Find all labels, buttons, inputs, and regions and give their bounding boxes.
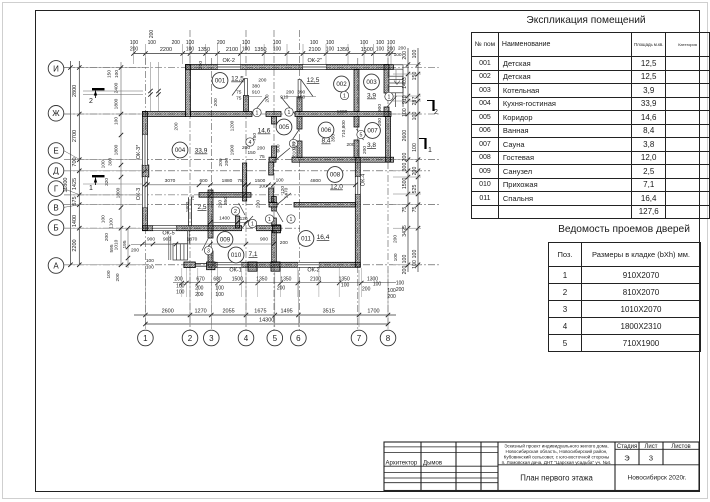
svg-text:ОК-2": ОК-2" [308,58,322,64]
svg-text:1270: 1270 [194,309,206,315]
svg-text:1: 1 [290,217,293,223]
svg-text:И: И [53,64,59,73]
svg-text:75: 75 [236,96,242,102]
svg-text:1350: 1350 [280,277,291,283]
svg-text:1800: 1800 [114,98,120,109]
svg-text:1495: 1495 [280,309,292,315]
svg-text:1: 1 [388,94,391,100]
svg-text:100: 100 [360,40,369,46]
svg-text:100: 100 [326,47,335,53]
svg-text:200: 200 [346,142,354,148]
svg-text:2200: 2200 [160,47,172,53]
svg-text:100: 100 [412,50,418,59]
svg-text:Г: Г [54,184,59,193]
svg-text:2600: 2600 [402,130,408,142]
svg-text:003: 003 [366,79,377,86]
svg-text:200: 200 [258,78,266,84]
svg-text:2700: 2700 [72,130,78,142]
svg-text:2055: 2055 [222,309,234,315]
svg-text:1600: 1600 [337,109,348,115]
svg-text:200: 200 [104,233,110,241]
svg-text:100: 100 [373,282,382,288]
svg-text:100: 100 [412,143,418,152]
svg-text:12,5: 12,5 [307,77,320,84]
svg-text:3: 3 [207,248,210,254]
svg-text:300: 300 [108,157,114,165]
svg-text:200: 200 [387,294,396,300]
svg-text:200: 200 [402,266,408,275]
svg-text:5: 5 [360,132,363,138]
svg-text:1350: 1350 [198,47,210,53]
svg-text:1350: 1350 [337,47,349,53]
svg-text:Е: Е [53,146,58,155]
svg-text:900: 900 [147,237,155,243]
svg-text:75: 75 [190,195,196,201]
svg-text:75: 75 [236,90,242,96]
svg-text:100: 100 [376,40,385,46]
svg-text:Б: Б [53,223,58,232]
svg-text:100: 100 [101,215,107,223]
svg-text:2,5: 2,5 [197,204,206,211]
svg-text:1800: 1800 [185,201,191,212]
svg-text:2100: 2100 [308,47,320,53]
svg-text:1880: 1880 [222,178,233,184]
svg-text:75: 75 [412,207,418,213]
svg-text:350: 350 [223,197,229,205]
svg-text:В: В [53,203,58,212]
svg-text:1900: 1900 [230,144,236,155]
svg-text:150: 150 [297,95,305,101]
svg-text:910: 910 [252,90,260,96]
svg-text:100: 100 [148,40,157,46]
svg-text:200: 200 [195,292,204,298]
svg-text:3425: 3425 [402,225,408,237]
svg-text:1500: 1500 [255,178,266,184]
svg-text:6: 6 [296,334,301,343]
svg-text:ОК-3: ОК-3 [136,188,142,200]
svg-text:2200: 2200 [72,239,78,251]
svg-text:1: 1 [428,147,432,154]
svg-text:006: 006 [321,127,332,134]
svg-text:14,6: 14,6 [258,128,271,135]
svg-text:1: 1 [143,334,148,343]
svg-text:4: 4 [249,140,252,146]
svg-text:150: 150 [247,150,255,156]
svg-text:200: 200 [264,94,270,102]
svg-text:75: 75 [259,154,265,160]
svg-text:100: 100 [101,160,107,168]
svg-text:100: 100 [412,260,418,269]
svg-text:011: 011 [301,236,311,243]
svg-text:900: 900 [377,104,383,112]
svg-text:1400: 1400 [219,216,230,222]
svg-text:810: 810 [292,149,298,157]
svg-text:300: 300 [402,163,408,172]
svg-text:200: 200 [115,273,121,281]
svg-text:200: 200 [362,146,368,154]
svg-text:3,9: 3,9 [367,93,376,100]
svg-text:1403: 1403 [402,77,408,89]
svg-text:100: 100 [215,292,224,298]
svg-text:007: 007 [367,128,378,135]
svg-text:575: 575 [72,196,78,205]
svg-text:7,1: 7,1 [248,251,257,258]
svg-text:100: 100 [242,40,251,46]
svg-text:7: 7 [357,334,362,343]
svg-text:11800: 11800 [63,178,69,193]
svg-text:2600: 2600 [162,309,174,315]
svg-text:750: 750 [252,133,258,141]
svg-text:200: 200 [393,235,399,243]
svg-text:100: 100 [276,178,284,184]
svg-text:100: 100 [215,286,224,292]
svg-text:3: 3 [209,334,214,343]
svg-text:14300: 14300 [259,318,274,324]
svg-text:680: 680 [213,277,222,283]
svg-text:3515: 3515 [323,309,335,315]
svg-text:008: 008 [330,172,341,179]
svg-text:200: 200 [218,158,224,166]
svg-text:200: 200 [213,98,219,106]
svg-text:ОК-2: ОК-2 [307,268,319,274]
svg-text:100: 100 [387,288,396,294]
svg-text:004: 004 [175,147,186,154]
svg-text:900: 900 [292,142,298,150]
svg-text:100: 100 [394,52,402,58]
svg-text:75: 75 [237,178,243,184]
svg-text:200: 200 [362,287,371,293]
svg-text:100: 100 [146,258,154,264]
svg-text:100: 100 [186,47,195,53]
svg-text:200: 200 [257,146,265,152]
svg-text:100: 100 [402,108,408,117]
svg-text:2: 2 [89,98,93,105]
svg-text:ОК-4: ОК-4 [361,174,367,186]
svg-text:150: 150 [412,72,418,81]
svg-text:1500: 1500 [402,178,408,190]
svg-text:200: 200 [224,158,230,166]
svg-text:100: 100 [176,290,185,296]
svg-text:250: 250 [218,200,224,208]
svg-text:5: 5 [273,334,278,343]
svg-text:100: 100 [396,281,405,287]
svg-text:4: 4 [244,334,249,343]
svg-text:1200: 1200 [230,120,236,131]
svg-text:200: 200 [277,285,286,291]
svg-text:200: 200 [402,51,408,60]
svg-text:100: 100 [412,112,418,121]
svg-text:Д: Д [53,166,59,175]
svg-text:2400: 2400 [114,82,120,93]
svg-text:1700: 1700 [367,309,379,315]
svg-text:009: 009 [220,237,231,244]
svg-text:33,9: 33,9 [195,148,208,155]
svg-text:1350: 1350 [256,277,267,283]
svg-text:1: 1 [256,110,259,116]
svg-text:3,8: 3,8 [367,142,376,149]
svg-text:2100: 2100 [310,277,321,283]
svg-text:2: 2 [434,109,438,116]
svg-text:001: 001 [215,78,226,85]
svg-text:1800: 1800 [116,187,122,198]
svg-text:670: 670 [196,277,205,283]
svg-text:1: 1 [288,110,291,116]
svg-text:16,4: 16,4 [317,234,330,241]
svg-text:287: 287 [412,97,418,106]
svg-text:2800: 2800 [72,85,78,97]
svg-text:380: 380 [252,84,260,90]
svg-text:1500: 1500 [361,47,373,53]
svg-text:75: 75 [402,207,408,213]
svg-text:Ж: Ж [52,109,60,118]
svg-text:200: 200 [149,30,155,39]
svg-text:1100: 1100 [109,218,115,229]
svg-text:100: 100 [310,40,319,46]
svg-text:100: 100 [130,40,139,46]
svg-text:700: 700 [72,157,78,166]
svg-text:100: 100 [273,47,282,53]
svg-text:100: 100 [186,40,195,46]
svg-text:200: 200 [402,153,408,162]
svg-text:ОК-2: ОК-2 [223,58,235,64]
svg-text:2: 2 [234,209,237,215]
svg-text:1675: 1675 [254,309,266,315]
svg-text:002: 002 [336,81,347,88]
svg-text:200: 200 [195,286,204,292]
svg-text:200: 200 [174,277,183,283]
svg-text:120: 120 [280,186,286,194]
svg-text:А: А [53,261,59,270]
svg-text:100: 100 [393,253,399,261]
svg-text:1: 1 [268,217,271,223]
svg-text:1800: 1800 [114,144,120,155]
svg-text:900: 900 [163,237,171,243]
svg-text:150: 150 [107,70,113,78]
svg-text:12,5: 12,5 [231,76,244,83]
svg-text:195: 195 [122,240,128,248]
svg-text:200: 200 [256,200,262,208]
svg-text:100: 100 [242,47,251,53]
svg-text:ОК-3*: ОК-3* [136,144,142,159]
svg-text:1350: 1350 [254,47,266,53]
svg-text:100: 100 [387,40,396,46]
svg-text:ОК-1: ОК-1 [229,268,241,274]
svg-text:100: 100 [106,270,112,278]
svg-text:4800: 4800 [310,178,321,184]
svg-text:010: 010 [231,252,242,259]
svg-text:200: 200 [412,167,418,176]
svg-text:1500: 1500 [232,277,243,283]
svg-text:100: 100 [341,282,350,288]
svg-text:8,4: 8,4 [321,138,330,145]
svg-text:200: 200 [217,40,226,46]
svg-text:200: 200 [396,287,405,293]
svg-text:600: 600 [276,144,282,152]
svg-text:1870: 1870 [187,237,198,243]
svg-text:100: 100 [326,40,335,46]
svg-text:ОК-5: ОК-5 [162,231,174,237]
svg-text:3070: 3070 [165,178,176,184]
svg-text:2100: 2100 [226,47,238,53]
svg-text:200: 200 [198,61,204,69]
svg-text:200: 200 [377,118,383,126]
svg-text:1425: 1425 [72,178,78,190]
svg-text:1010: 1010 [114,239,120,250]
svg-text:2: 2 [188,334,193,343]
svg-text:100: 100 [376,47,385,53]
svg-text:350: 350 [331,134,337,142]
svg-text:200: 200 [172,40,181,46]
svg-text:320: 320 [104,178,110,186]
svg-text:1: 1 [343,93,346,99]
svg-text:100: 100 [259,184,267,190]
svg-text:200: 200 [387,47,396,53]
svg-text:1: 1 [89,185,93,192]
svg-text:100: 100 [273,40,282,46]
svg-text:100: 100 [402,255,408,264]
svg-text:200: 200 [174,122,180,130]
svg-text:910: 910 [402,95,408,104]
svg-text:200: 200 [280,240,288,246]
svg-text:200: 200 [131,248,139,254]
svg-text:200: 200 [398,46,406,52]
svg-text:910: 910 [280,95,288,101]
svg-text:100: 100 [114,70,120,78]
svg-text:525: 525 [412,185,418,194]
svg-text:1: 1 [251,221,254,227]
svg-text:900: 900 [260,237,268,243]
svg-text:710,800: 710,800 [341,120,347,138]
svg-text:005: 005 [279,124,290,131]
svg-text:100: 100 [114,117,120,125]
svg-text:1400: 1400 [72,215,78,227]
svg-text:100: 100 [146,265,154,271]
svg-text:200: 200 [130,47,139,53]
svg-text:8: 8 [386,334,391,343]
svg-text:100: 100 [412,250,418,259]
